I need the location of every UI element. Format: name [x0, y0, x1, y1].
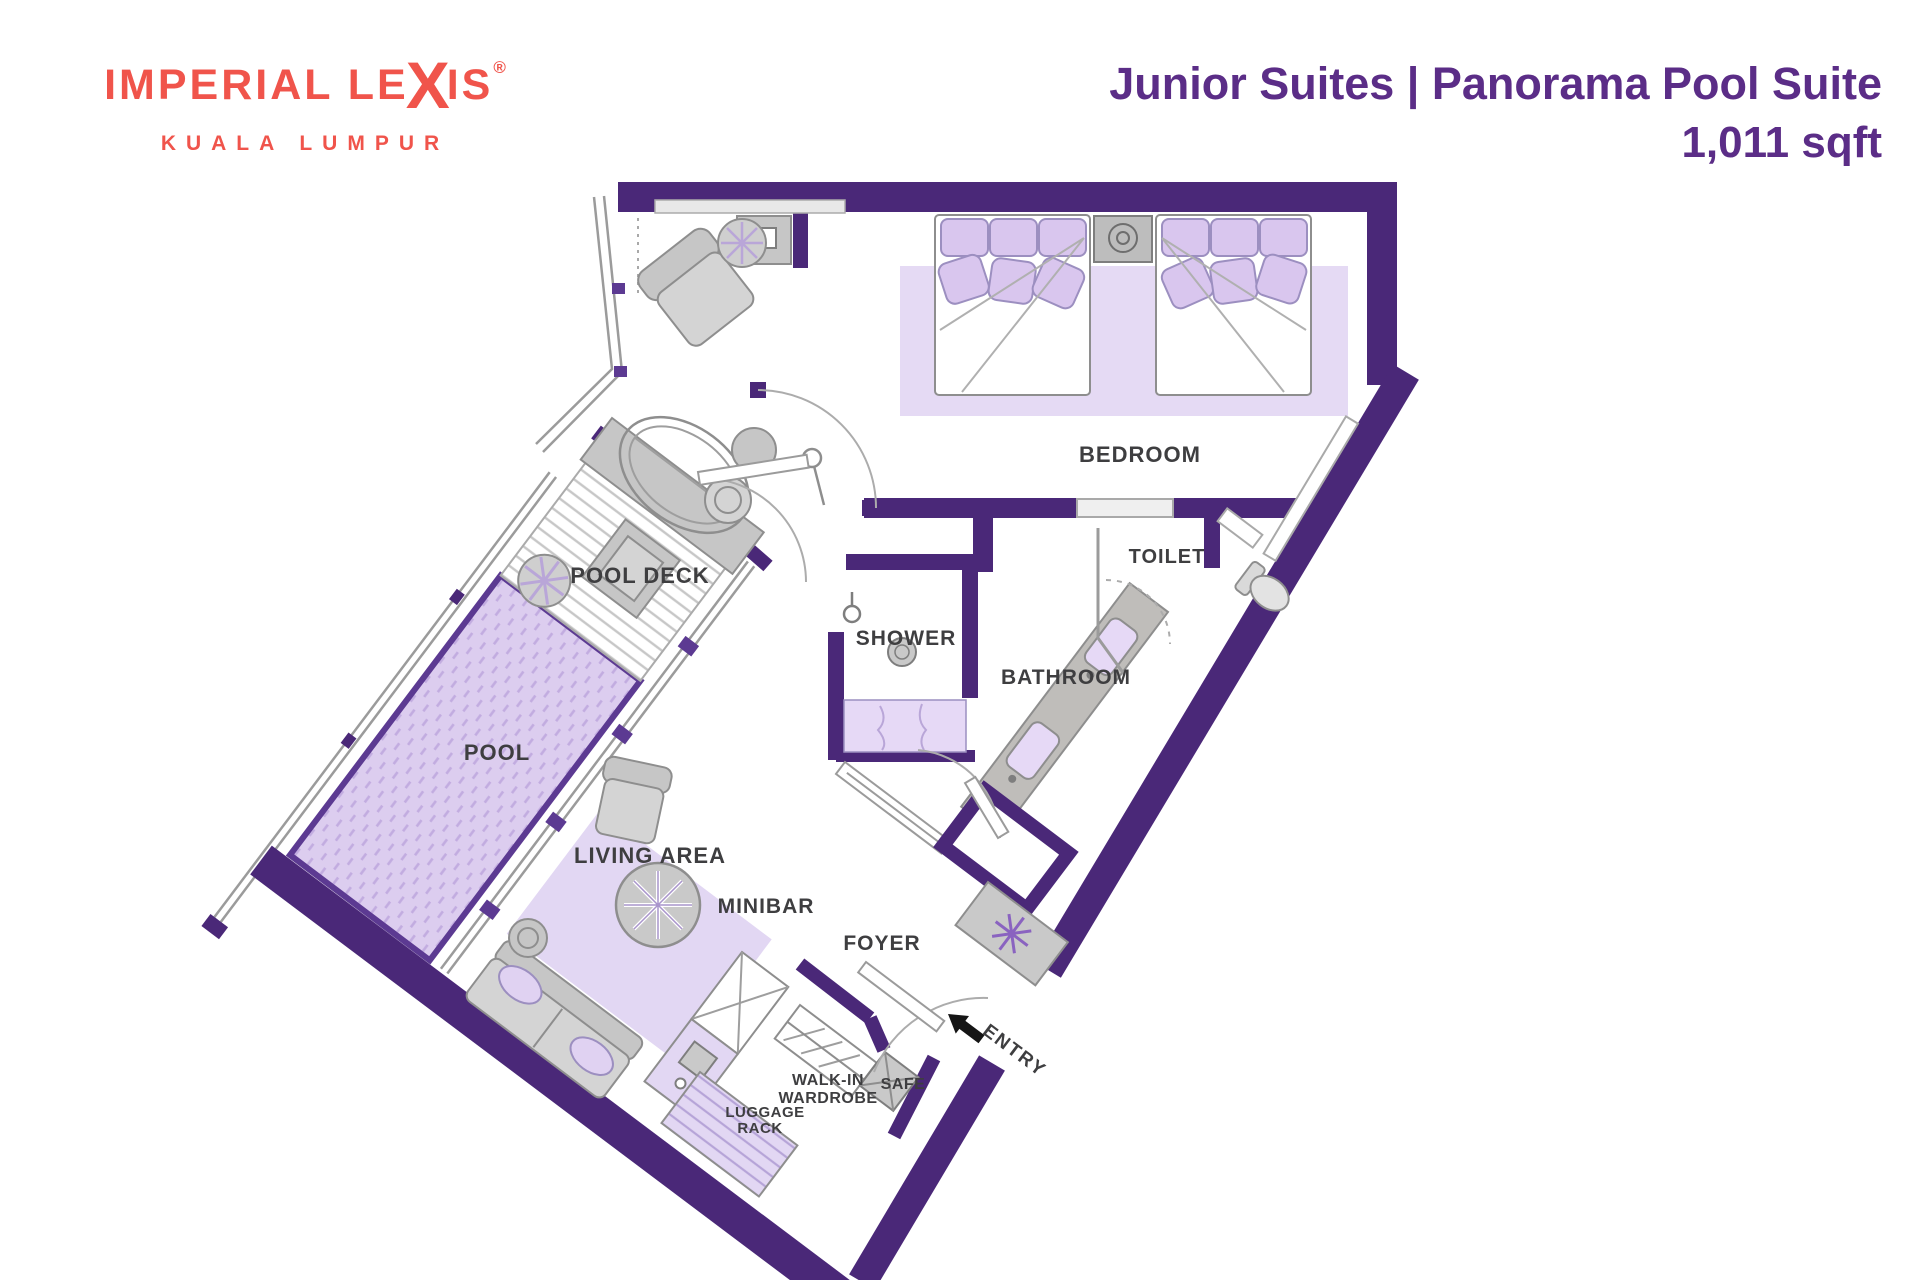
glass-corner	[536, 196, 638, 452]
shower-head	[844, 592, 860, 622]
wall-wardrobe-step	[870, 1018, 884, 1050]
label-bedroom: BEDROOM	[1079, 442, 1201, 467]
glass-mullion	[479, 899, 500, 920]
nightstand	[1094, 216, 1152, 262]
glass-mullion	[612, 283, 625, 294]
label-foyer: FOYER	[843, 932, 920, 955]
shower-bench	[844, 700, 966, 752]
lounge-corner	[633, 216, 791, 352]
bed-right	[1156, 215, 1311, 395]
label-minibar: MINIBAR	[718, 895, 815, 918]
glass-corner-line	[543, 196, 622, 452]
label-wardrobe: WALK-INWARDROBE	[778, 1072, 877, 1107]
label-safe: SAFE	[881, 1076, 926, 1093]
label-toilet: TOILET	[1129, 546, 1206, 568]
label-bathroom: BATHROOM	[1001, 666, 1131, 689]
label-luggage-line1: LUGGAGE	[725, 1104, 804, 1121]
coffee-table	[616, 863, 700, 947]
entry-arrow-icon	[941, 1005, 988, 1048]
label-luggage-line2: RACK	[737, 1120, 782, 1137]
glass-mullion	[678, 636, 699, 657]
floorplan-drawing: BEDROOM TOILET SHOWER BATHROOM POOL DECK…	[0, 0, 1930, 1280]
label-wardrobe-line1: WALK-IN	[792, 1072, 864, 1089]
floorplan-page: IMPERIAL LEXIS® KUALA LUMPUR Junior Suit…	[0, 0, 1930, 1280]
glass-corner-line	[536, 197, 612, 444]
wall-bedroom-stub	[793, 210, 808, 268]
bed-left	[935, 215, 1090, 395]
sliding-glass-door	[836, 762, 950, 853]
label-shower: SHOWER	[856, 627, 957, 650]
window-top-wall	[655, 200, 845, 213]
label-pool-deck: POOL DECK	[570, 563, 709, 588]
label-living-area: LIVING AREA	[574, 843, 726, 868]
glass-mullion	[614, 366, 627, 377]
label-luggage: LUGGAGERACK	[725, 1104, 804, 1137]
lounge-plant	[718, 219, 766, 267]
bedroom-internal-window	[1077, 499, 1173, 517]
glass-mullion	[611, 724, 632, 745]
side-table	[509, 919, 547, 957]
glass-mullion	[545, 812, 566, 833]
living-armchair	[591, 755, 674, 845]
label-pool: POOL	[464, 740, 530, 765]
